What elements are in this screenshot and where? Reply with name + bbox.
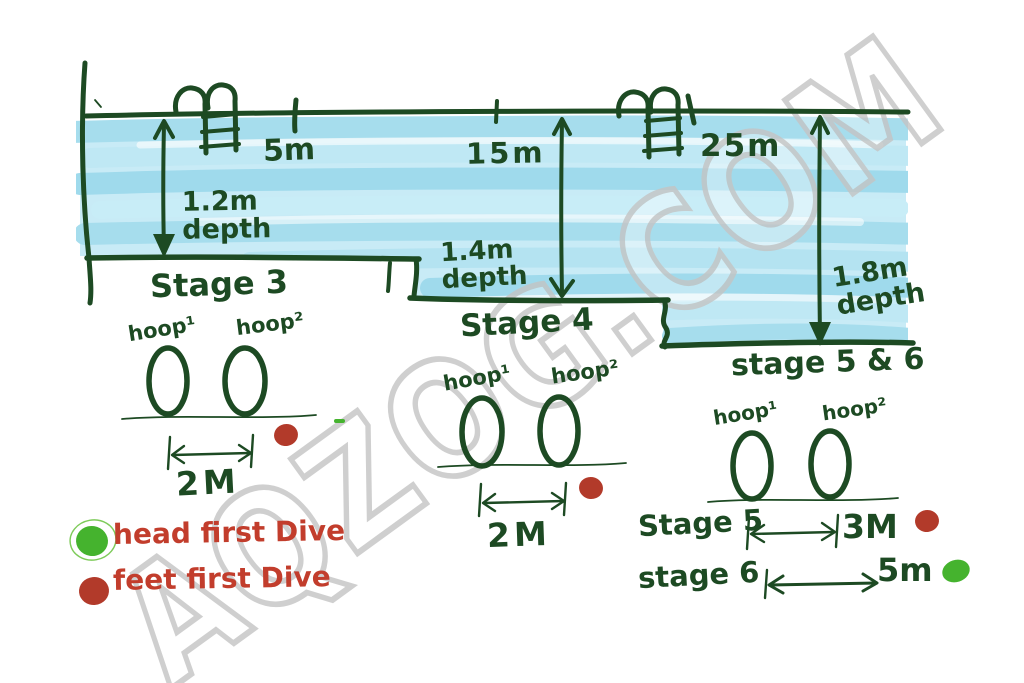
stage5-distance-label: 3M <box>842 510 898 544</box>
hoop2-label-set2: hoop² <box>550 357 620 388</box>
stage5-row-label: Stage 5 <box>637 506 763 542</box>
distance-label-set1: 2M <box>175 464 240 501</box>
marker-label-5m: 5m <box>262 135 315 167</box>
marker-label-15m: 15m <box>466 138 546 169</box>
stage4-label: Stage 4 <box>459 305 594 344</box>
legend-head-first-label: head first Dive <box>113 517 346 550</box>
hoop1-label-set3: hoop¹ <box>712 398 779 428</box>
legend-feet-first-label: feet first Dive <box>113 563 331 595</box>
hoop2-label-set3: hoop² <box>821 395 888 424</box>
hoop1-label-set2: hoop¹ <box>442 362 513 395</box>
stage6-row-label: stage 6 <box>637 558 760 594</box>
stage3-label: Stage 3 <box>149 266 288 303</box>
hoop2-label-set1: hoop² <box>235 310 305 340</box>
pool-stages-diagram: AQZOG.COM <box>0 0 1024 683</box>
depth-label-1-8m: 1.8m depth <box>830 251 927 319</box>
distance-label-set2: 2M <box>486 517 551 553</box>
hoop1-label-set1: hoop¹ <box>127 314 198 346</box>
depth-label-1-2m: 1.2m depth <box>182 187 272 244</box>
labels-layer: 5m 15m 25m 1.2m depth 1.4m depth 1.8m de… <box>0 0 1024 683</box>
stage6-distance-label: 5m <box>877 554 933 587</box>
stage56-label: stage 5 & 6 <box>731 345 925 382</box>
depth-label-1-4m: 1.4m depth <box>440 236 528 293</box>
marker-label-25m: 25m <box>700 131 781 163</box>
